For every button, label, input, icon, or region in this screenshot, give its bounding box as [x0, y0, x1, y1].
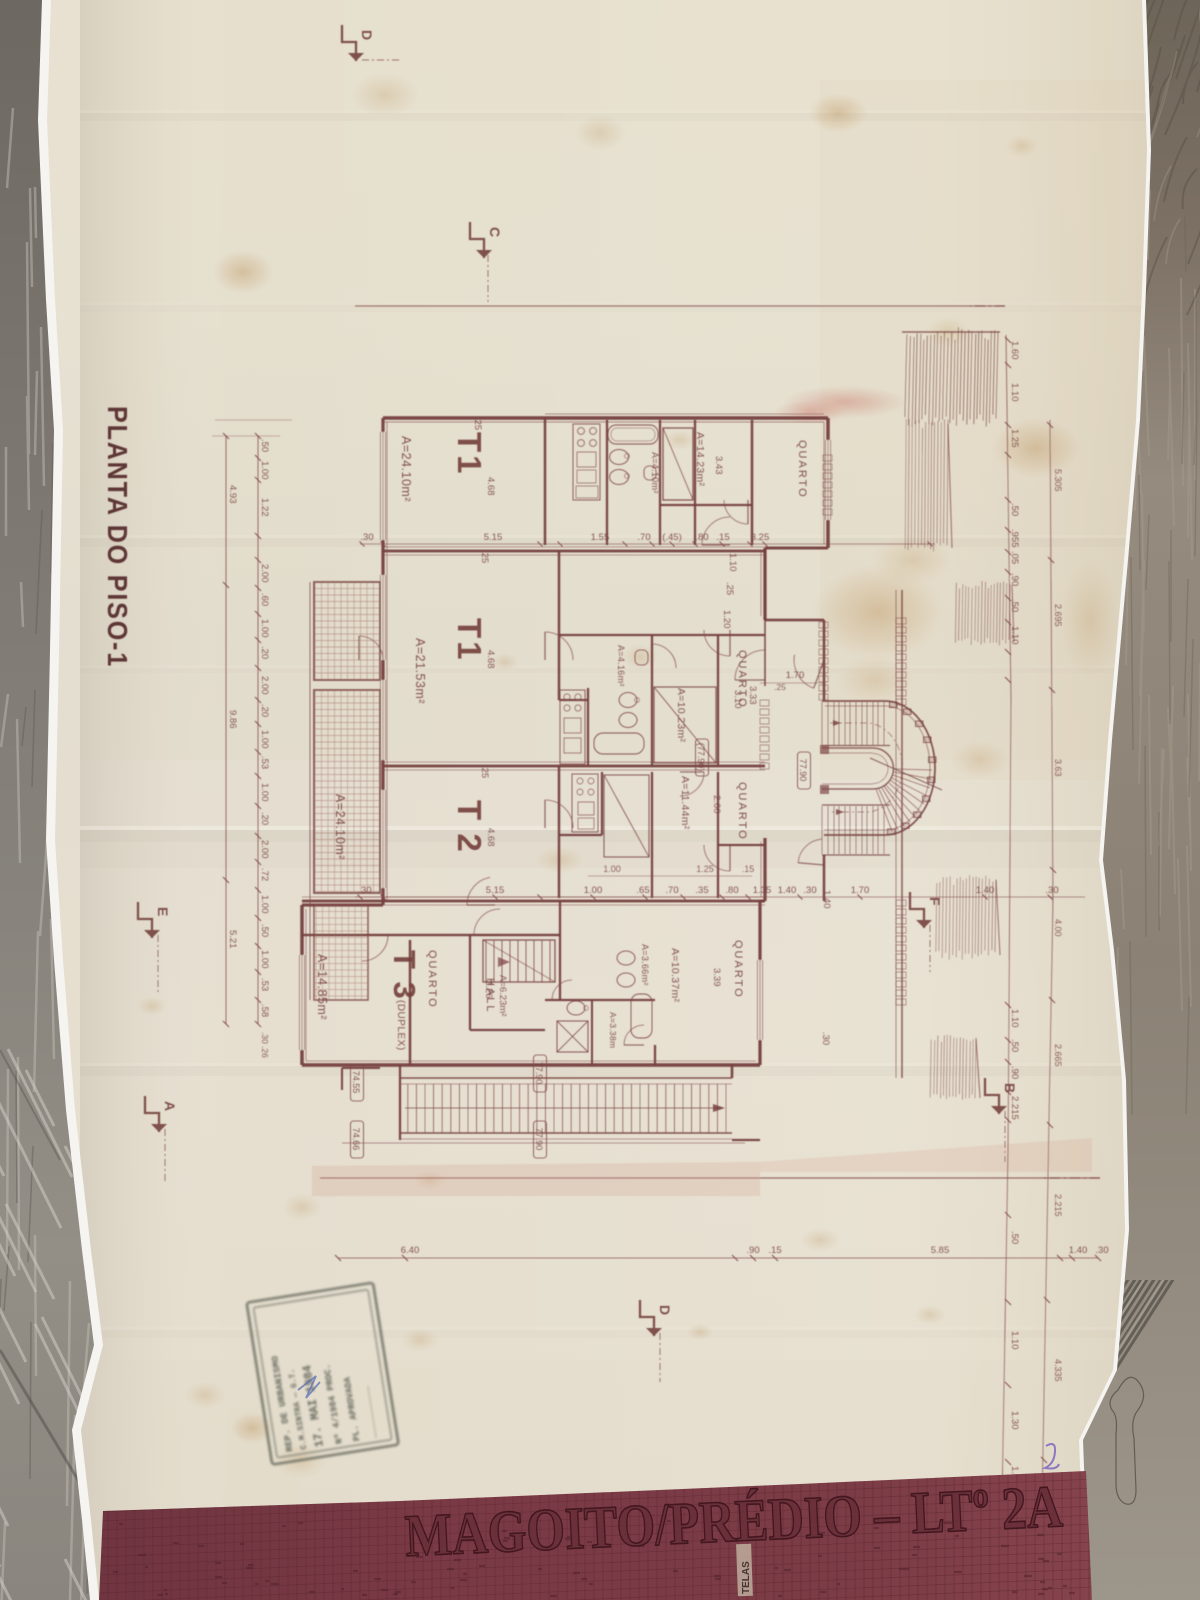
svg-text:5.21: 5.21 [227, 930, 238, 949]
svg-text:9.86: 9.86 [227, 710, 238, 729]
svg-text:1.55: 1.55 [591, 532, 610, 543]
svg-text:1.00: 1.00 [603, 864, 621, 874]
svg-text:5.15: 5.15 [484, 532, 503, 543]
svg-text:.50: .50 [259, 924, 270, 937]
svg-text:1.25: 1.25 [1009, 429, 1020, 448]
svg-text:.30: .30 [260, 1032, 270, 1044]
svg-text:1.00: 1.00 [584, 885, 603, 896]
svg-text:.35: .35 [695, 885, 708, 896]
svg-text:.20: .20 [259, 646, 270, 659]
svg-text:.30: .30 [360, 532, 373, 543]
svg-text:1.00: 1.00 [259, 461, 270, 480]
svg-text:1.00: 1.00 [259, 619, 270, 638]
svg-text:(.45): (.45) [662, 532, 682, 543]
svg-text:F: F [927, 897, 943, 906]
svg-text:6.40: 6.40 [401, 1245, 420, 1256]
svg-text:1.10: 1.10 [1009, 383, 1020, 402]
svg-text:.50: .50 [1009, 1231, 1020, 1244]
svg-text:(DUPLEX): (DUPLEX) [395, 1000, 406, 1051]
svg-text:QUARTO: QUARTO [736, 782, 748, 841]
svg-text:74.55: 74.55 [351, 1071, 361, 1094]
svg-text:QUARTO: QUARTO [426, 950, 438, 1009]
svg-text:1.10: 1.10 [1009, 1331, 1020, 1350]
svg-text:77.90: 77.90 [534, 1128, 544, 1151]
svg-text:1.40: 1.40 [821, 890, 832, 909]
svg-text:5.85: 5.85 [931, 1245, 950, 1256]
svg-text:2.60: 2.60 [711, 795, 722, 814]
svg-text:.50: .50 [259, 439, 270, 452]
svg-text:.25: .25 [724, 582, 735, 595]
svg-text:.30: .30 [803, 885, 816, 896]
svg-text:TELAS: TELAS [741, 1561, 752, 1594]
svg-text:A=4.16m²: A=4.16m² [616, 645, 626, 687]
svg-text:.58: .58 [259, 1004, 270, 1017]
svg-text:T 3: T 3 [387, 950, 422, 1001]
svg-text:1.40: 1.40 [1069, 1245, 1088, 1256]
svg-text:D: D [359, 30, 375, 40]
svg-text:.30: .30 [358, 885, 371, 896]
svg-text:1.30: 1.30 [1009, 1411, 1020, 1430]
svg-text:1.10: 1.10 [1009, 626, 1020, 645]
svg-text:QUARTO: QUARTO [736, 650, 748, 709]
svg-text:A=6.23m²: A=6.23m² [497, 975, 508, 1016]
svg-text:1.25: 1.25 [696, 864, 714, 874]
svg-text:.955: .955 [1009, 529, 1020, 548]
svg-text:.25: .25 [472, 417, 483, 430]
svg-text:.25: .25 [479, 550, 490, 563]
svg-text:A=3.66m²: A=3.66m² [640, 944, 650, 986]
svg-text:5.15: 5.15 [486, 885, 505, 896]
svg-text:.50: .50 [1009, 1039, 1020, 1052]
svg-text:.20: .20 [259, 704, 270, 717]
svg-text:.50: .50 [1009, 503, 1020, 516]
svg-text:4.93: 4.93 [227, 485, 238, 504]
svg-text:.70: .70 [637, 532, 650, 543]
svg-text:74.66: 74.66 [351, 1128, 361, 1151]
svg-text:.30: .30 [1095, 1245, 1108, 1256]
svg-text:77.90: 77.90 [534, 1062, 544, 1085]
svg-text:2.00: 2.00 [259, 676, 270, 695]
svg-text:.15: .15 [768, 1245, 781, 1256]
svg-text:A: A [162, 1101, 178, 1111]
svg-text:.70: .70 [665, 885, 678, 896]
svg-text:5.305: 5.305 [1053, 469, 1063, 492]
svg-text:.15: .15 [716, 532, 729, 543]
svg-text:3.25: 3.25 [751, 532, 770, 543]
svg-text:.05: .05 [1009, 551, 1020, 564]
svg-text:.60: .60 [259, 593, 270, 606]
svg-text:C: C [487, 227, 503, 237]
svg-text:1.40: 1.40 [976, 885, 995, 896]
svg-text:.72: .72 [259, 868, 270, 881]
svg-text:PLANTA DO PISO-1: PLANTA DO PISO-1 [102, 406, 133, 668]
svg-text:QUARTO: QUARTO [732, 940, 744, 999]
svg-text:.26: .26 [260, 1046, 270, 1058]
svg-text:1.10: 1.10 [1009, 1009, 1020, 1028]
svg-text:1.00: 1.00 [259, 783, 270, 802]
svg-text:4.68: 4.68 [485, 477, 496, 496]
svg-text:A=10.37m²: A=10.37m² [669, 948, 681, 1003]
svg-text:3.63: 3.63 [1053, 759, 1063, 777]
svg-text:A=11.44m²: A=11.44m² [679, 776, 691, 830]
svg-text:1.00: 1.00 [259, 730, 270, 749]
svg-text:.90: .90 [746, 1245, 759, 1256]
svg-text:D: D [657, 1305, 673, 1315]
svg-text:T1: T1 [451, 432, 488, 477]
svg-text:.25: .25 [774, 682, 786, 692]
svg-text:A=21.53m²: A=21.53m² [413, 638, 427, 704]
svg-text:A=4.10m²: A=4.10m² [650, 452, 660, 494]
svg-text:T 2: T 2 [451, 800, 488, 854]
svg-text:HALL: HALL [484, 978, 496, 1014]
svg-text:.80: .80 [725, 885, 738, 896]
svg-text:4.00: 4.00 [1053, 919, 1063, 937]
svg-text:T1: T1 [451, 618, 488, 663]
svg-text:1.20: 1.20 [721, 610, 732, 629]
svg-text:.65: .65 [636, 885, 649, 896]
svg-text:2.665: 2.665 [1053, 1044, 1063, 1067]
svg-text:(77.90): (77.90) [696, 743, 706, 772]
svg-text:E: E [155, 907, 171, 916]
svg-text:.50: .50 [1009, 599, 1020, 612]
svg-text:1.22: 1.22 [259, 498, 270, 517]
svg-text:2.00: 2.00 [259, 564, 270, 583]
svg-text:B: B [1002, 1083, 1018, 1093]
svg-text:1.70: 1.70 [786, 670, 805, 681]
svg-text:4.335: 4.335 [1053, 1359, 1063, 1382]
svg-text:1.00: 1.00 [259, 950, 270, 969]
svg-text:.15: .15 [742, 864, 755, 874]
svg-text:A=3.38m: A=3.38m [608, 1012, 618, 1048]
svg-text:.90: .90 [1009, 1066, 1020, 1079]
svg-text:A=10.23m²: A=10.23m² [675, 688, 687, 743]
svg-text:1.10: 1.10 [727, 553, 738, 572]
svg-text:3.43: 3.43 [713, 456, 724, 475]
svg-text:1.00: 1.00 [259, 895, 270, 914]
svg-text:1.60: 1.60 [1009, 341, 1020, 360]
svg-text:2.695: 2.695 [1053, 604, 1063, 627]
svg-text:1.35: 1.35 [753, 885, 772, 896]
svg-text:1.70: 1.70 [851, 885, 870, 896]
svg-text:QUARTO: QUARTO [796, 440, 808, 499]
svg-text:.90: .90 [1009, 573, 1020, 586]
svg-text:1.40: 1.40 [778, 885, 797, 896]
svg-text:.30: .30 [1045, 885, 1058, 896]
svg-text:A=14.85m²: A=14.85m² [315, 954, 329, 1020]
svg-text:.30: .30 [820, 1032, 831, 1045]
svg-text:A=14.23m²: A=14.23m² [694, 432, 706, 487]
svg-text:.53: .53 [259, 756, 270, 769]
svg-text:.80: .80 [695, 532, 708, 543]
svg-text:.25: .25 [479, 765, 490, 778]
svg-text:A=24.10m²: A=24.10m² [399, 436, 413, 502]
svg-text:3.39: 3.39 [711, 968, 722, 987]
svg-text:.20: .20 [259, 812, 270, 825]
svg-text:2.215: 2.215 [1009, 1096, 1020, 1120]
svg-text:2.00: 2.00 [259, 840, 270, 859]
svg-text:77.90: 77.90 [798, 759, 808, 782]
svg-text:.53: .53 [259, 978, 270, 991]
svg-text:2.215: 2.215 [1053, 1194, 1063, 1217]
svg-text:A=24.10m²: A=24.10m² [333, 794, 347, 860]
